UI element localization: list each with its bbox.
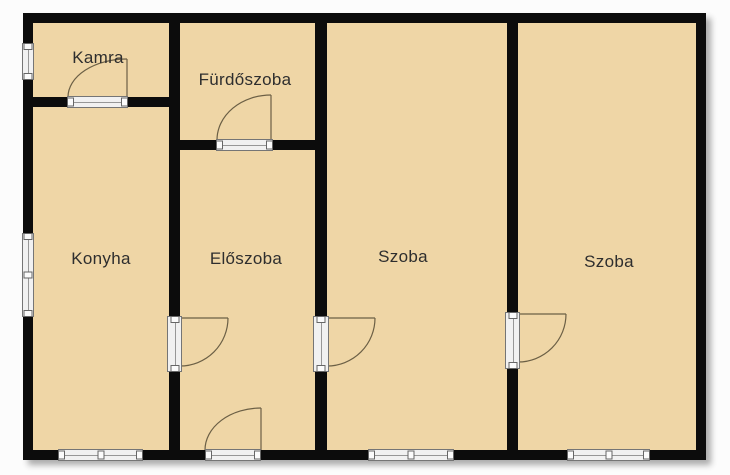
room-label-konyha: Konyha [71, 249, 130, 269]
door-frame-szoba1-szoba2 [505, 312, 520, 369]
door-cap [317, 316, 326, 323]
window-cap [605, 451, 612, 460]
floor-plan: Kamra Fürdőszoba Konyha Előszoba Szoba S… [23, 13, 706, 460]
door-cap [508, 362, 517, 369]
door-cap [205, 451, 212, 460]
window-cap [24, 272, 33, 279]
door-frame-kamra [67, 96, 128, 108]
window-cap [24, 310, 33, 317]
window-cap [368, 451, 375, 460]
door-swing-entrance [205, 408, 261, 450]
window-cap [447, 451, 454, 460]
window-cap [58, 451, 65, 460]
window-cap [24, 233, 33, 240]
door-cap [170, 365, 179, 372]
window-kamra-west [22, 43, 34, 80]
window-cap [567, 451, 574, 460]
room-label-kamra: Kamra [72, 48, 124, 68]
floorplan-canvas: Kamra Fürdőszoba Konyha Előszoba Szoba S… [0, 0, 730, 475]
room-label-furdoszoba: Fürdőszoba [199, 70, 292, 90]
door-frame-konyha-eloszoba [167, 316, 182, 372]
window-cap [408, 451, 415, 460]
window-szoba2-south [567, 449, 650, 461]
door-cap [266, 141, 273, 150]
door-cap [67, 98, 74, 107]
door-swing-szoba1-szoba2 [518, 314, 566, 362]
door-frame-eloszoba-szoba1 [313, 316, 329, 372]
window-cap [643, 451, 650, 460]
window-cap [97, 451, 104, 460]
door-swing-furdoszoba [217, 95, 271, 140]
room-label-szoba-1: Szoba [378, 247, 428, 267]
window-szoba1-south [368, 449, 454, 461]
room-label-eloszoba: Előszoba [210, 249, 282, 269]
door-cap [317, 365, 326, 372]
window-cap [136, 451, 143, 460]
window-konyha-south [58, 449, 143, 461]
door-swings-layer [23, 13, 706, 460]
door-swing-eloszoba-szoba1 [327, 318, 375, 366]
door-frame-entrance [205, 449, 261, 461]
window-cap [24, 73, 33, 80]
window-konyha-west [22, 233, 34, 317]
door-cap [254, 451, 261, 460]
room-label-szoba-2: Szoba [584, 252, 634, 272]
door-cap [508, 312, 517, 319]
door-frame-furdoszoba [216, 139, 273, 151]
door-cap [216, 141, 223, 150]
door-cap [170, 316, 179, 323]
window-cap [24, 43, 33, 50]
door-cap [121, 98, 128, 107]
door-swing-konyha-eloszoba [180, 318, 228, 366]
